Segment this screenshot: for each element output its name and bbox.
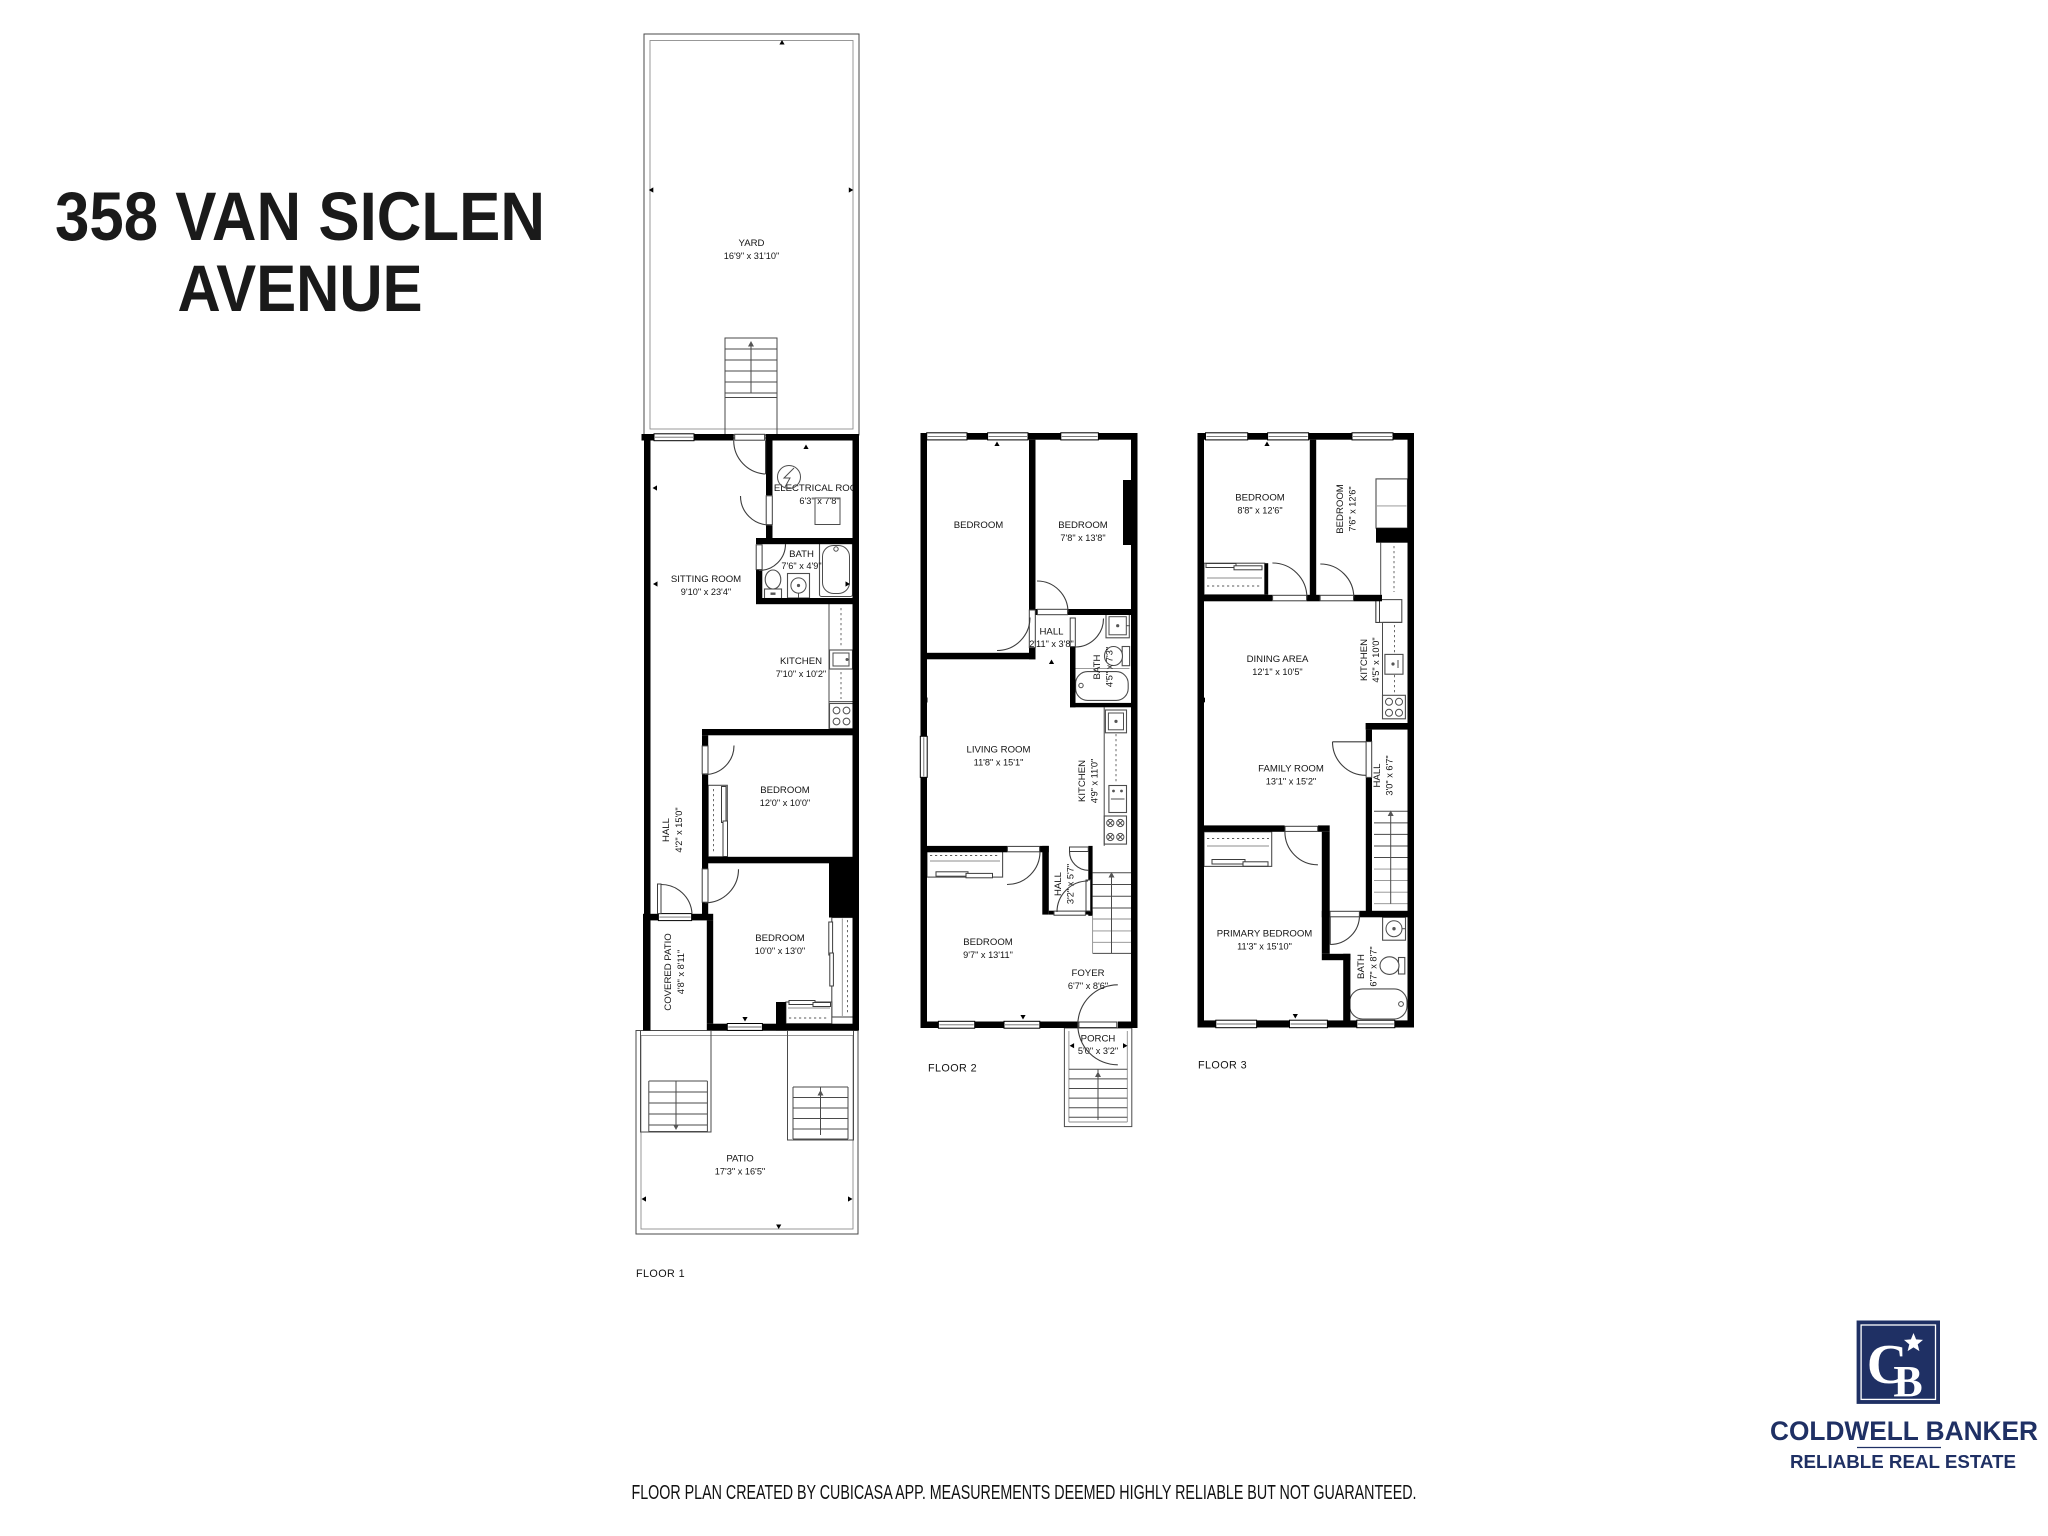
svg-text:16'9" x 31'10": 16'9" x 31'10" — [724, 251, 780, 261]
svg-text:7'6" x 12'6": 7'6" x 12'6" — [1348, 486, 1358, 531]
svg-text:BEDROOM: BEDROOM — [1335, 484, 1346, 534]
svg-text:8'8" x 12'6": 8'8" x 12'6" — [1237, 506, 1282, 516]
svg-text:FLOOR 2: FLOOR 2 — [928, 1063, 977, 1075]
svg-text:KITCHEN: KITCHEN — [780, 656, 822, 667]
svg-text:BEDROOM: BEDROOM — [1235, 493, 1285, 504]
svg-text:RELIABLE REAL ESTATE: RELIABLE REAL ESTATE — [1790, 1452, 2016, 1472]
svg-text:HALL: HALL — [661, 817, 672, 842]
svg-text:358 VAN SICLEN: 358 VAN SICLEN — [55, 178, 545, 255]
svg-text:B: B — [1893, 1357, 1922, 1406]
svg-text:11'3" x 15'10": 11'3" x 15'10" — [1237, 942, 1292, 952]
svg-text:FLOOR 1: FLOOR 1 — [636, 1268, 685, 1280]
svg-text:BEDROOM: BEDROOM — [954, 520, 1004, 531]
svg-text:KITCHEN: KITCHEN — [1077, 760, 1088, 802]
svg-text:10'0" x 13'0": 10'0" x 13'0" — [755, 946, 805, 956]
svg-text:5'0" x 3'2": 5'0" x 3'2" — [1078, 1046, 1118, 1056]
svg-text:BATH: BATH — [1356, 954, 1367, 979]
svg-text:3'2" x 5'7": 3'2" x 5'7" — [1066, 864, 1076, 904]
svg-text:4'8" x 8'11": 4'8" x 8'11" — [676, 950, 686, 995]
svg-text:BEDROOM: BEDROOM — [755, 933, 805, 944]
svg-text:7'6" x 4'9": 7'6" x 4'9" — [781, 561, 821, 571]
svg-text:KITCHEN: KITCHEN — [1359, 639, 1370, 681]
svg-text:BEDROOM: BEDROOM — [760, 785, 810, 796]
svg-text:BATH: BATH — [789, 549, 814, 560]
svg-text:HALL: HALL — [1053, 871, 1064, 896]
svg-text:PORCH: PORCH — [1081, 1034, 1116, 1045]
svg-text:4'5" x 10'0": 4'5" x 10'0" — [1371, 637, 1381, 682]
svg-text:DINING AREA: DINING AREA — [1247, 654, 1309, 665]
svg-text:7'10" x 10'2": 7'10" x 10'2" — [776, 669, 826, 679]
svg-text:11'8" x 15'1": 11'8" x 15'1" — [974, 758, 1024, 768]
svg-text:HALL: HALL — [1372, 763, 1383, 788]
svg-text:6'7" x 8'7": 6'7" x 8'7" — [1369, 946, 1379, 986]
svg-text:12'1" x 10'5": 12'1" x 10'5" — [1252, 667, 1302, 677]
svg-text:FLOOR PLAN CREATED BY CUBICASA: FLOOR PLAN CREATED BY CUBICASA APP. MEAS… — [632, 1482, 1417, 1504]
svg-text:9'10" x 23'4": 9'10" x 23'4" — [681, 587, 731, 597]
svg-text:COLDWELL BANKER: COLDWELL BANKER — [1770, 1416, 2038, 1446]
svg-text:AVENUE: AVENUE — [178, 251, 423, 325]
svg-text:2'11" x 3'8": 2'11" x 3'8" — [1029, 639, 1074, 649]
svg-text:4'9" x 11'0": 4'9" x 11'0" — [1090, 759, 1100, 804]
svg-text:COVERED PATIO: COVERED PATIO — [663, 933, 674, 1010]
svg-text:13'1" x 15'2": 13'1" x 15'2" — [1266, 777, 1316, 787]
svg-text:3'0" x 6'7": 3'0" x 6'7" — [1385, 755, 1395, 795]
svg-text:SITTING ROOM: SITTING ROOM — [671, 574, 741, 585]
svg-text:17'3" x 16'5": 17'3" x 16'5" — [715, 1167, 765, 1177]
svg-text:BEDROOM: BEDROOM — [963, 937, 1013, 948]
svg-text:PATIO: PATIO — [726, 1154, 753, 1165]
svg-text:9'7" x 13'11": 9'7" x 13'11" — [963, 950, 1013, 960]
svg-text:FOYER: FOYER — [1071, 968, 1104, 979]
svg-text:PRIMARY BEDROOM: PRIMARY BEDROOM — [1217, 929, 1313, 940]
svg-text:LIVING ROOM: LIVING ROOM — [967, 745, 1031, 756]
svg-text:12'0" x 10'0": 12'0" x 10'0" — [760, 798, 810, 808]
svg-text:4'2" x 15'0": 4'2" x 15'0" — [674, 807, 684, 852]
svg-text:4'5" x 7'3": 4'5" x 7'3" — [1105, 647, 1115, 687]
svg-text:FAMILY ROOM: FAMILY ROOM — [1258, 764, 1324, 775]
svg-text:BATH: BATH — [1092, 654, 1103, 679]
svg-text:HALL: HALL — [1040, 627, 1065, 638]
svg-text:YARD: YARD — [739, 238, 765, 249]
svg-text:FLOOR 3: FLOOR 3 — [1198, 1060, 1247, 1072]
svg-text:6'7" x 8'6": 6'7" x 8'6" — [1068, 981, 1108, 991]
svg-text:BEDROOM: BEDROOM — [1058, 520, 1108, 531]
svg-text:7'8" x 13'8": 7'8" x 13'8" — [1060, 533, 1105, 543]
